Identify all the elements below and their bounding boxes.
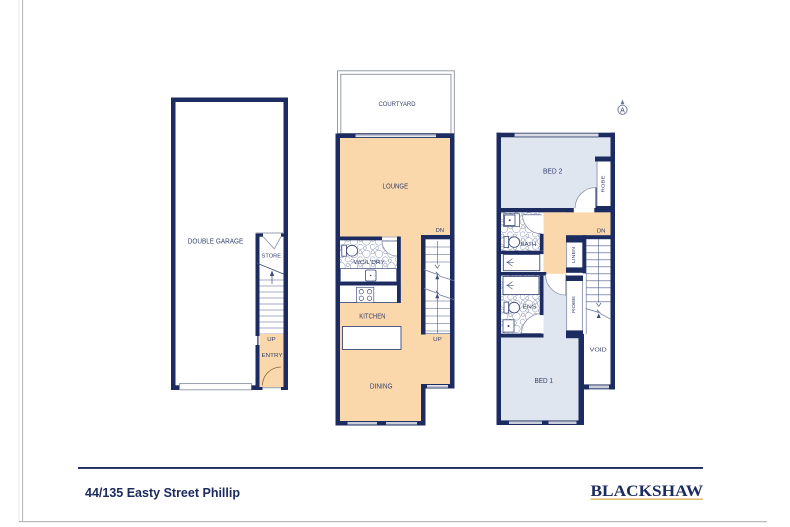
svg-text:LINEN: LINEN xyxy=(571,247,576,263)
svg-text:STORE: STORE xyxy=(262,254,282,260)
svg-text:DOUBLE GARAGE: DOUBLE GARAGE xyxy=(188,239,244,246)
svg-text:LOUNGE: LOUNGE xyxy=(383,183,409,190)
svg-text:BATH: BATH xyxy=(520,242,536,248)
svg-text:BED 1: BED 1 xyxy=(534,378,553,385)
svg-text:KITCHEN: KITCHEN xyxy=(359,314,385,321)
svg-text:44/135 Easty Street Phillip: 44/135 Easty Street Phillip xyxy=(85,485,240,500)
svg-text:UP: UP xyxy=(267,337,276,343)
svg-text:BED 2: BED 2 xyxy=(543,169,563,176)
svg-text:BLACKSHAW: BLACKSHAW xyxy=(591,483,704,500)
svg-text:DN: DN xyxy=(597,228,606,234)
svg-text:DN: DN xyxy=(436,228,445,234)
svg-text:ROBE: ROBE xyxy=(571,296,577,313)
svg-text:UP: UP xyxy=(433,337,442,343)
svg-text:VOID: VOID xyxy=(590,348,607,354)
svg-text:ROBE: ROBE xyxy=(601,176,607,193)
svg-text:A: A xyxy=(620,107,625,114)
svg-text:DINING: DINING xyxy=(370,384,393,391)
svg-text:ENTRY: ENTRY xyxy=(262,353,283,359)
svg-text:ENS: ENS xyxy=(522,305,536,311)
svg-text:COURTYARD: COURTYARD xyxy=(379,101,417,108)
svg-text:WC/L'DRY: WC/L'DRY xyxy=(354,260,385,266)
